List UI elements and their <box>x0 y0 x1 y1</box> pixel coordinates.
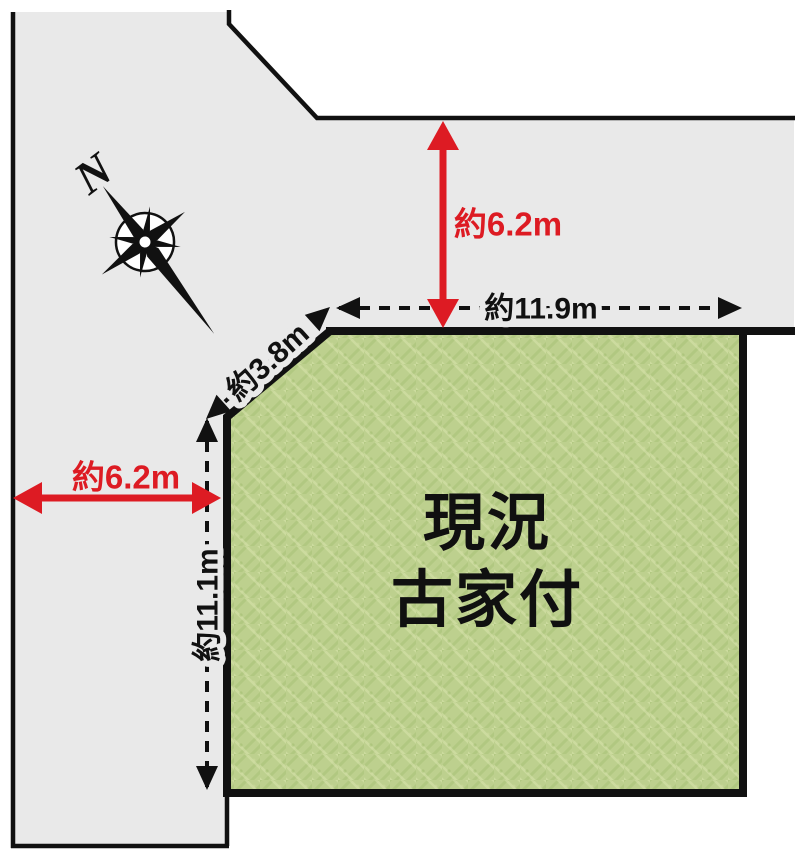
measure-top-edge-label: 約11.9m <box>484 293 597 326</box>
land-plot-diagram: 現況 古家付 N 約11.9m <box>0 0 804 854</box>
plot-status-line2: 古家付 <box>391 566 583 635</box>
plot-status-line1: 現況 <box>423 490 551 558</box>
measure-left-edge-label: 約11.1m <box>192 548 225 661</box>
road-edge-top <box>229 10 795 118</box>
measure-road-left-label: 約6.2m <box>72 459 180 496</box>
diagram-canvas: 現況 古家付 N 約11.9m <box>0 0 804 854</box>
plot-area <box>227 331 743 793</box>
measure-road-top-label: 約6.2m <box>454 206 562 243</box>
